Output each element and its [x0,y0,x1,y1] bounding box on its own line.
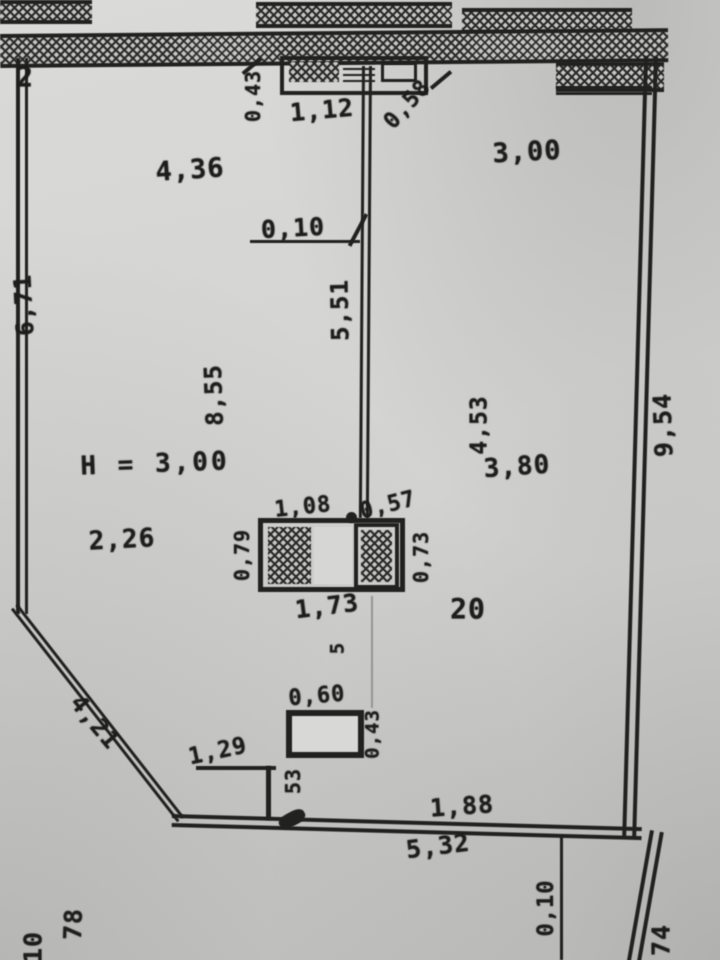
dim-partition-length: 5,51 [327,279,352,341]
dim-door-width: 1,12 [289,95,355,126]
lower-partition-line [560,836,563,960]
dim-diagonal-wall: 4,21 [66,691,124,754]
top-right-step-line [556,86,652,95]
door-detail-hatched-leaf [289,62,339,82]
top-hatch-strip-left [0,0,92,24]
dim-step-width: 1,29 [187,735,250,770]
dim-right-room-width: 3,80 [483,452,551,483]
vent-shaft-box [286,710,364,758]
door-dim-tick-right [430,70,452,90]
dim-room-top-left-width: 4,36 [155,154,226,186]
dim-door-left-side: 0,43 [243,70,263,122]
dim-room-depth-left: 8,55 [201,364,227,427]
partition-unit-joint-dot [346,512,357,523]
dim-corner-top-left: 2 [16,63,34,91]
dim-bottom-left-corner: 10 [21,931,46,960]
dim-step-side: 53 [283,768,303,794]
ceiling-height-note: H = 3,00 [80,448,230,479]
dim-bottom-right-partial: 74 [649,924,674,956]
apartment-number: 20 [450,595,486,623]
dim-bottom-right-offset: 0,10 [536,880,558,937]
dim-unit-bottom-width: 1,73 [294,590,361,623]
dim-bottom-wall-lower: 5,32 [405,830,472,863]
dim-unit-top-left: 1,08 [274,494,333,522]
door-detail-striped-leaf [343,62,375,82]
floor-plan: 2 0,43 1,12 0,58 4,36 3,00 0,10 5,51 6,7… [0,0,720,960]
unit-shaft-connector-line [371,596,373,708]
sanitary-unit-middle-cell [314,527,352,584]
dim-bottom-left-partial: 78 [60,908,86,941]
sanitary-unit-right-cell-fill [361,530,392,582]
dim-unit-right-depth: 0,73 [411,531,431,583]
floor-plan-photo: 2 0,43 1,12 0,58 4,36 3,00 0,10 5,51 6,7… [0,0,720,960]
dim-shaft-depth: 0,43 [364,709,383,759]
step-side-line [266,766,271,820]
door-detail-open-leaf [381,62,417,82]
dim-bottom-wall-upper: 1,88 [429,791,495,820]
center-partition-wall [359,66,372,518]
dim-right-wall-length: 9,54 [649,392,676,457]
dim-left-wall-length: 6,71 [10,274,37,337]
dim-left-mid-width: 2,26 [88,525,156,554]
dim-partition-offset: 0,10 [260,214,325,242]
dim-right-room-depth: 4,53 [469,395,492,454]
dim-below-unit: 5 [329,642,348,654]
sanitary-unit-left-cell [268,527,311,584]
dim-shaft-width: 0,60 [288,684,347,711]
dim-room-top-right-width: 3,00 [492,137,562,168]
dim-unit-left-depth: 0,79 [232,529,252,581]
top-hatch-strip-mid [256,2,452,28]
